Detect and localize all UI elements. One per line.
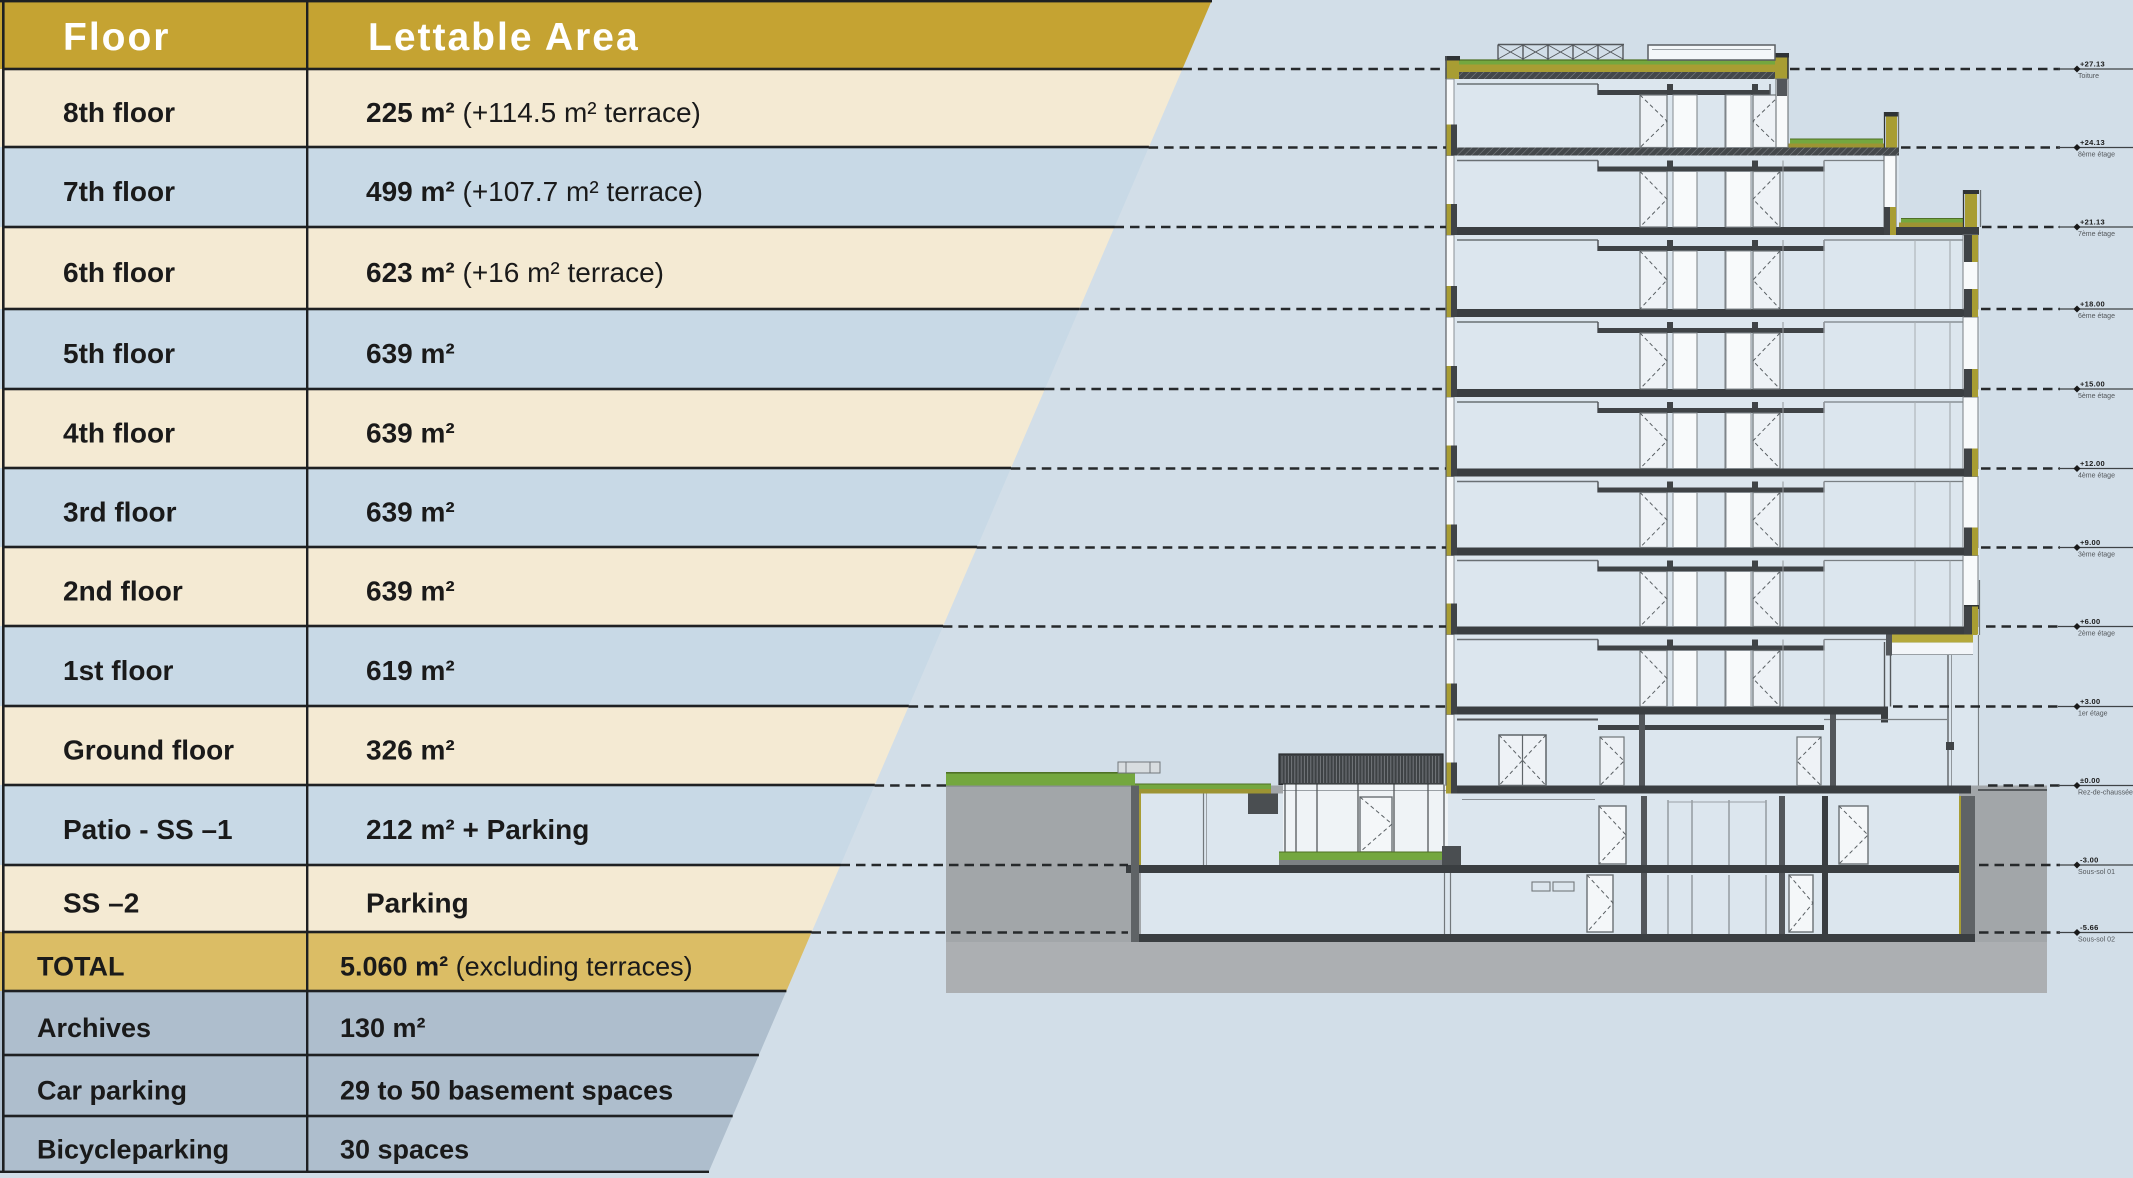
svg-text:7th floor: 7th floor <box>63 176 175 207</box>
svg-text:Patio - SS –1: Patio - SS –1 <box>63 814 233 845</box>
svg-text:326 m²: 326 m² <box>366 735 455 766</box>
svg-text:Sous-sol 01: Sous-sol 01 <box>2078 869 2115 876</box>
svg-text:5th floor: 5th floor <box>63 338 175 369</box>
svg-text:+9.00: +9.00 <box>2080 538 2100 547</box>
svg-text:+6.00: +6.00 <box>2080 617 2100 626</box>
svg-text:1er étage: 1er étage <box>2078 711 2108 718</box>
svg-text:5.060 m² (excluding terraces): 5.060 m² (excluding terraces) <box>340 952 693 982</box>
svg-text:639 m²: 639 m² <box>366 418 455 449</box>
svg-text:212 m² + Parking: 212 m² + Parking <box>366 814 589 845</box>
svg-text:+12.00: +12.00 <box>2080 459 2105 468</box>
svg-text:+24.13: +24.13 <box>2080 138 2105 147</box>
svg-text:29 to 50 basement spaces: 29 to 50 basement spaces <box>340 1076 673 1106</box>
svg-text:30 spaces: 30 spaces <box>340 1135 469 1165</box>
svg-text:6ème étage: 6ème étage <box>2078 313 2115 320</box>
svg-text:Archives: Archives <box>37 1013 151 1043</box>
svg-text:8th floor: 8th floor <box>63 97 175 128</box>
svg-text:7ème étage: 7ème étage <box>2078 231 2115 238</box>
svg-text:Car parking: Car parking <box>37 1076 187 1106</box>
svg-text:SS –2: SS –2 <box>63 888 139 919</box>
svg-text:+21.13: +21.13 <box>2080 218 2105 227</box>
svg-text:499 m² (+107.7 m² terrace): 499 m² (+107.7 m² terrace) <box>366 176 703 207</box>
svg-text:Floor: Floor <box>63 16 170 59</box>
svg-text:619 m²: 619 m² <box>366 655 455 686</box>
svg-text:Rez-de-chaussée: Rez-de-chaussée <box>2078 790 2133 797</box>
svg-text:Bicycleparking: Bicycleparking <box>37 1135 229 1165</box>
svg-text:±0.00: ±0.00 <box>2080 776 2100 785</box>
svg-text:+15.00: +15.00 <box>2080 380 2105 389</box>
svg-text:639 m²: 639 m² <box>366 338 455 369</box>
svg-text:+18.00: +18.00 <box>2080 300 2105 309</box>
svg-text:130 m²: 130 m² <box>340 1013 426 1043</box>
svg-text:Sous-sol 02: Sous-sol 02 <box>2078 937 2115 944</box>
svg-text:Ground floor: Ground floor <box>63 735 234 766</box>
svg-text:623 m² (+16 m² terrace): 623 m² (+16 m² terrace) <box>366 257 664 288</box>
svg-text:5ème étage: 5ème étage <box>2078 393 2115 400</box>
svg-text:3rd floor: 3rd floor <box>63 497 177 528</box>
svg-text:1st floor: 1st floor <box>63 655 174 686</box>
svg-text:2ème étage: 2ème étage <box>2078 631 2115 638</box>
svg-text:2nd floor: 2nd floor <box>63 576 183 607</box>
svg-text:225 m² (+114.5 m² terrace): 225 m² (+114.5 m² terrace) <box>366 97 701 128</box>
svg-text:Lettable Area: Lettable Area <box>368 16 640 59</box>
svg-text:639 m²: 639 m² <box>366 497 455 528</box>
svg-text:4ème étage: 4ème étage <box>2078 473 2115 480</box>
svg-text:-5.66: -5.66 <box>2080 923 2099 932</box>
svg-text:+3.00: +3.00 <box>2080 697 2100 706</box>
svg-text:Toiture: Toiture <box>2078 73 2099 80</box>
svg-text:Parking: Parking <box>366 888 469 919</box>
svg-text:639 m²: 639 m² <box>366 576 455 607</box>
svg-text:3ème étage: 3ème étage <box>2078 552 2115 559</box>
svg-text:4th floor: 4th floor <box>63 418 175 449</box>
svg-text:+27.13: +27.13 <box>2080 60 2105 69</box>
svg-text:-3.00: -3.00 <box>2080 856 2099 865</box>
svg-text:TOTAL: TOTAL <box>37 952 125 982</box>
svg-text:8ème étage: 8ème étage <box>2078 152 2115 159</box>
svg-text:6th floor: 6th floor <box>63 257 175 288</box>
